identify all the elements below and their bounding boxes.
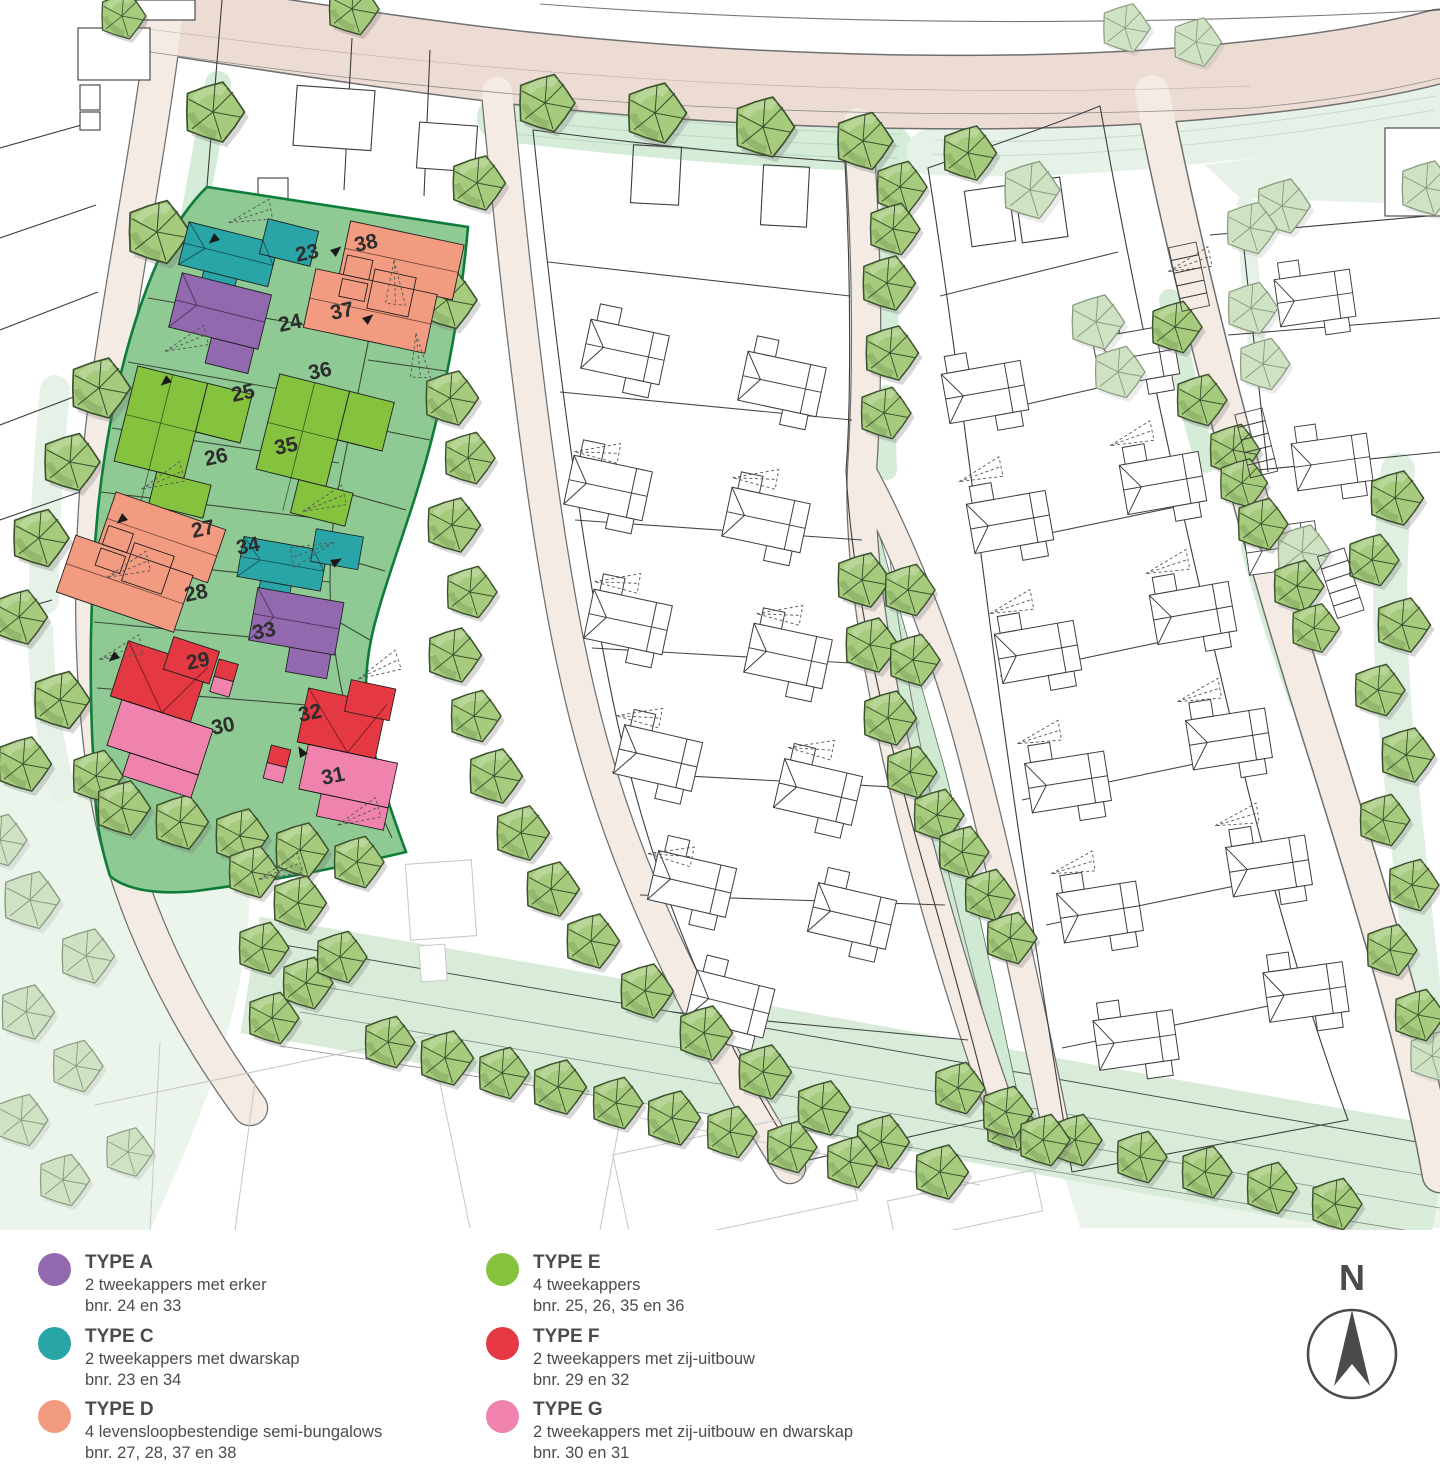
- legend-item-type-g: TYPE G 2 tweekappers met zij-uitbouw en …: [486, 1398, 853, 1464]
- tree-icon: [1390, 859, 1440, 915]
- legend-item-type-c: TYPE C 2 tweekappers met dwarskap bnr. 2…: [38, 1325, 300, 1391]
- legend-description: 2 tweekappers met zij-uitbouw en dwarska…: [533, 1422, 853, 1443]
- legend-item-type-e: TYPE E 4 tweekappers bnr. 25, 26, 35 en …: [486, 1251, 684, 1317]
- legend-description: 2 tweekappers met zij-uitbouw: [533, 1349, 755, 1370]
- legend-title: TYPE G: [533, 1398, 853, 1422]
- lot-number: 32: [296, 700, 324, 727]
- legend-lot-numbers: bnr. 23 en 34: [85, 1370, 300, 1391]
- legend-title: TYPE D: [85, 1398, 382, 1422]
- lot-number: 30: [209, 713, 237, 740]
- type-g-swatch-icon: [486, 1400, 519, 1433]
- tree-icon: [567, 914, 623, 973]
- lot-number: 26: [202, 444, 230, 471]
- lot-number: 29: [184, 648, 212, 675]
- compass-north-label: N: [1339, 1257, 1365, 1298]
- type-a-swatch-icon: [38, 1253, 71, 1286]
- tree-icon: [14, 510, 73, 572]
- type-d-swatch-icon: [38, 1400, 71, 1433]
- legend-item-type-d: TYPE D 4 levensloopbestendige semi-bunga…: [38, 1398, 382, 1464]
- legend-title: TYPE A: [85, 1251, 267, 1275]
- tree-icon: [452, 690, 505, 746]
- legend-lot-numbers: bnr. 25, 26, 35 en 36: [533, 1296, 684, 1317]
- lot-number: 27: [189, 516, 217, 543]
- tree-icon: [1229, 282, 1282, 338]
- tree-icon: [448, 566, 501, 622]
- type-e-swatch-icon: [486, 1253, 519, 1286]
- legend-description: 2 tweekappers met dwarskap: [85, 1349, 300, 1370]
- tree-icon: [429, 628, 485, 687]
- legend-lot-numbers: bnr. 24 en 33: [85, 1296, 267, 1317]
- legend-description: 4 tweekappers: [533, 1275, 684, 1296]
- legend-title: TYPE C: [85, 1325, 300, 1349]
- north-needle-icon: [1334, 1310, 1370, 1386]
- legend-item-type-f: TYPE F 2 tweekappers met zij-uitbouw bnr…: [486, 1325, 755, 1391]
- tree-icon: [1241, 338, 1294, 394]
- legend-lot-numbers: bnr. 27, 28, 37 en 38: [85, 1443, 382, 1464]
- site-plan-page: 23242526272829303132333435363738 TYPE A …: [0, 0, 1440, 1484]
- tree-icon: [428, 498, 484, 557]
- lot-number: 23: [293, 240, 321, 267]
- type-f-swatch-icon: [486, 1327, 519, 1360]
- north-compass-icon: N: [1300, 1252, 1404, 1412]
- lot-number: 36: [306, 358, 334, 385]
- legend-item-type-a: TYPE A 2 tweekappers met erker bnr. 24 e…: [38, 1251, 267, 1317]
- tree-icon: [1104, 4, 1154, 57]
- legend-lot-numbers: bnr. 29 en 32: [533, 1370, 755, 1391]
- lot-number: 33: [250, 618, 278, 645]
- tree-icon: [497, 806, 553, 865]
- legend-lot-numbers: bnr. 30 en 31: [533, 1443, 853, 1464]
- tree-icon: [446, 432, 499, 488]
- legend-title: TYPE F: [533, 1325, 755, 1349]
- legend-title: TYPE E: [533, 1251, 684, 1275]
- legend-description: 2 tweekappers met erker: [85, 1275, 267, 1296]
- tree-icon: [470, 749, 526, 808]
- tree-icon: [527, 862, 583, 921]
- site-plan-map: 23242526272829303132333435363738: [0, 0, 1440, 1230]
- type-c-swatch-icon: [38, 1327, 71, 1360]
- legend-description: 4 levensloopbestendige semi-bungalows: [85, 1422, 382, 1443]
- lot-number: 37: [328, 298, 356, 325]
